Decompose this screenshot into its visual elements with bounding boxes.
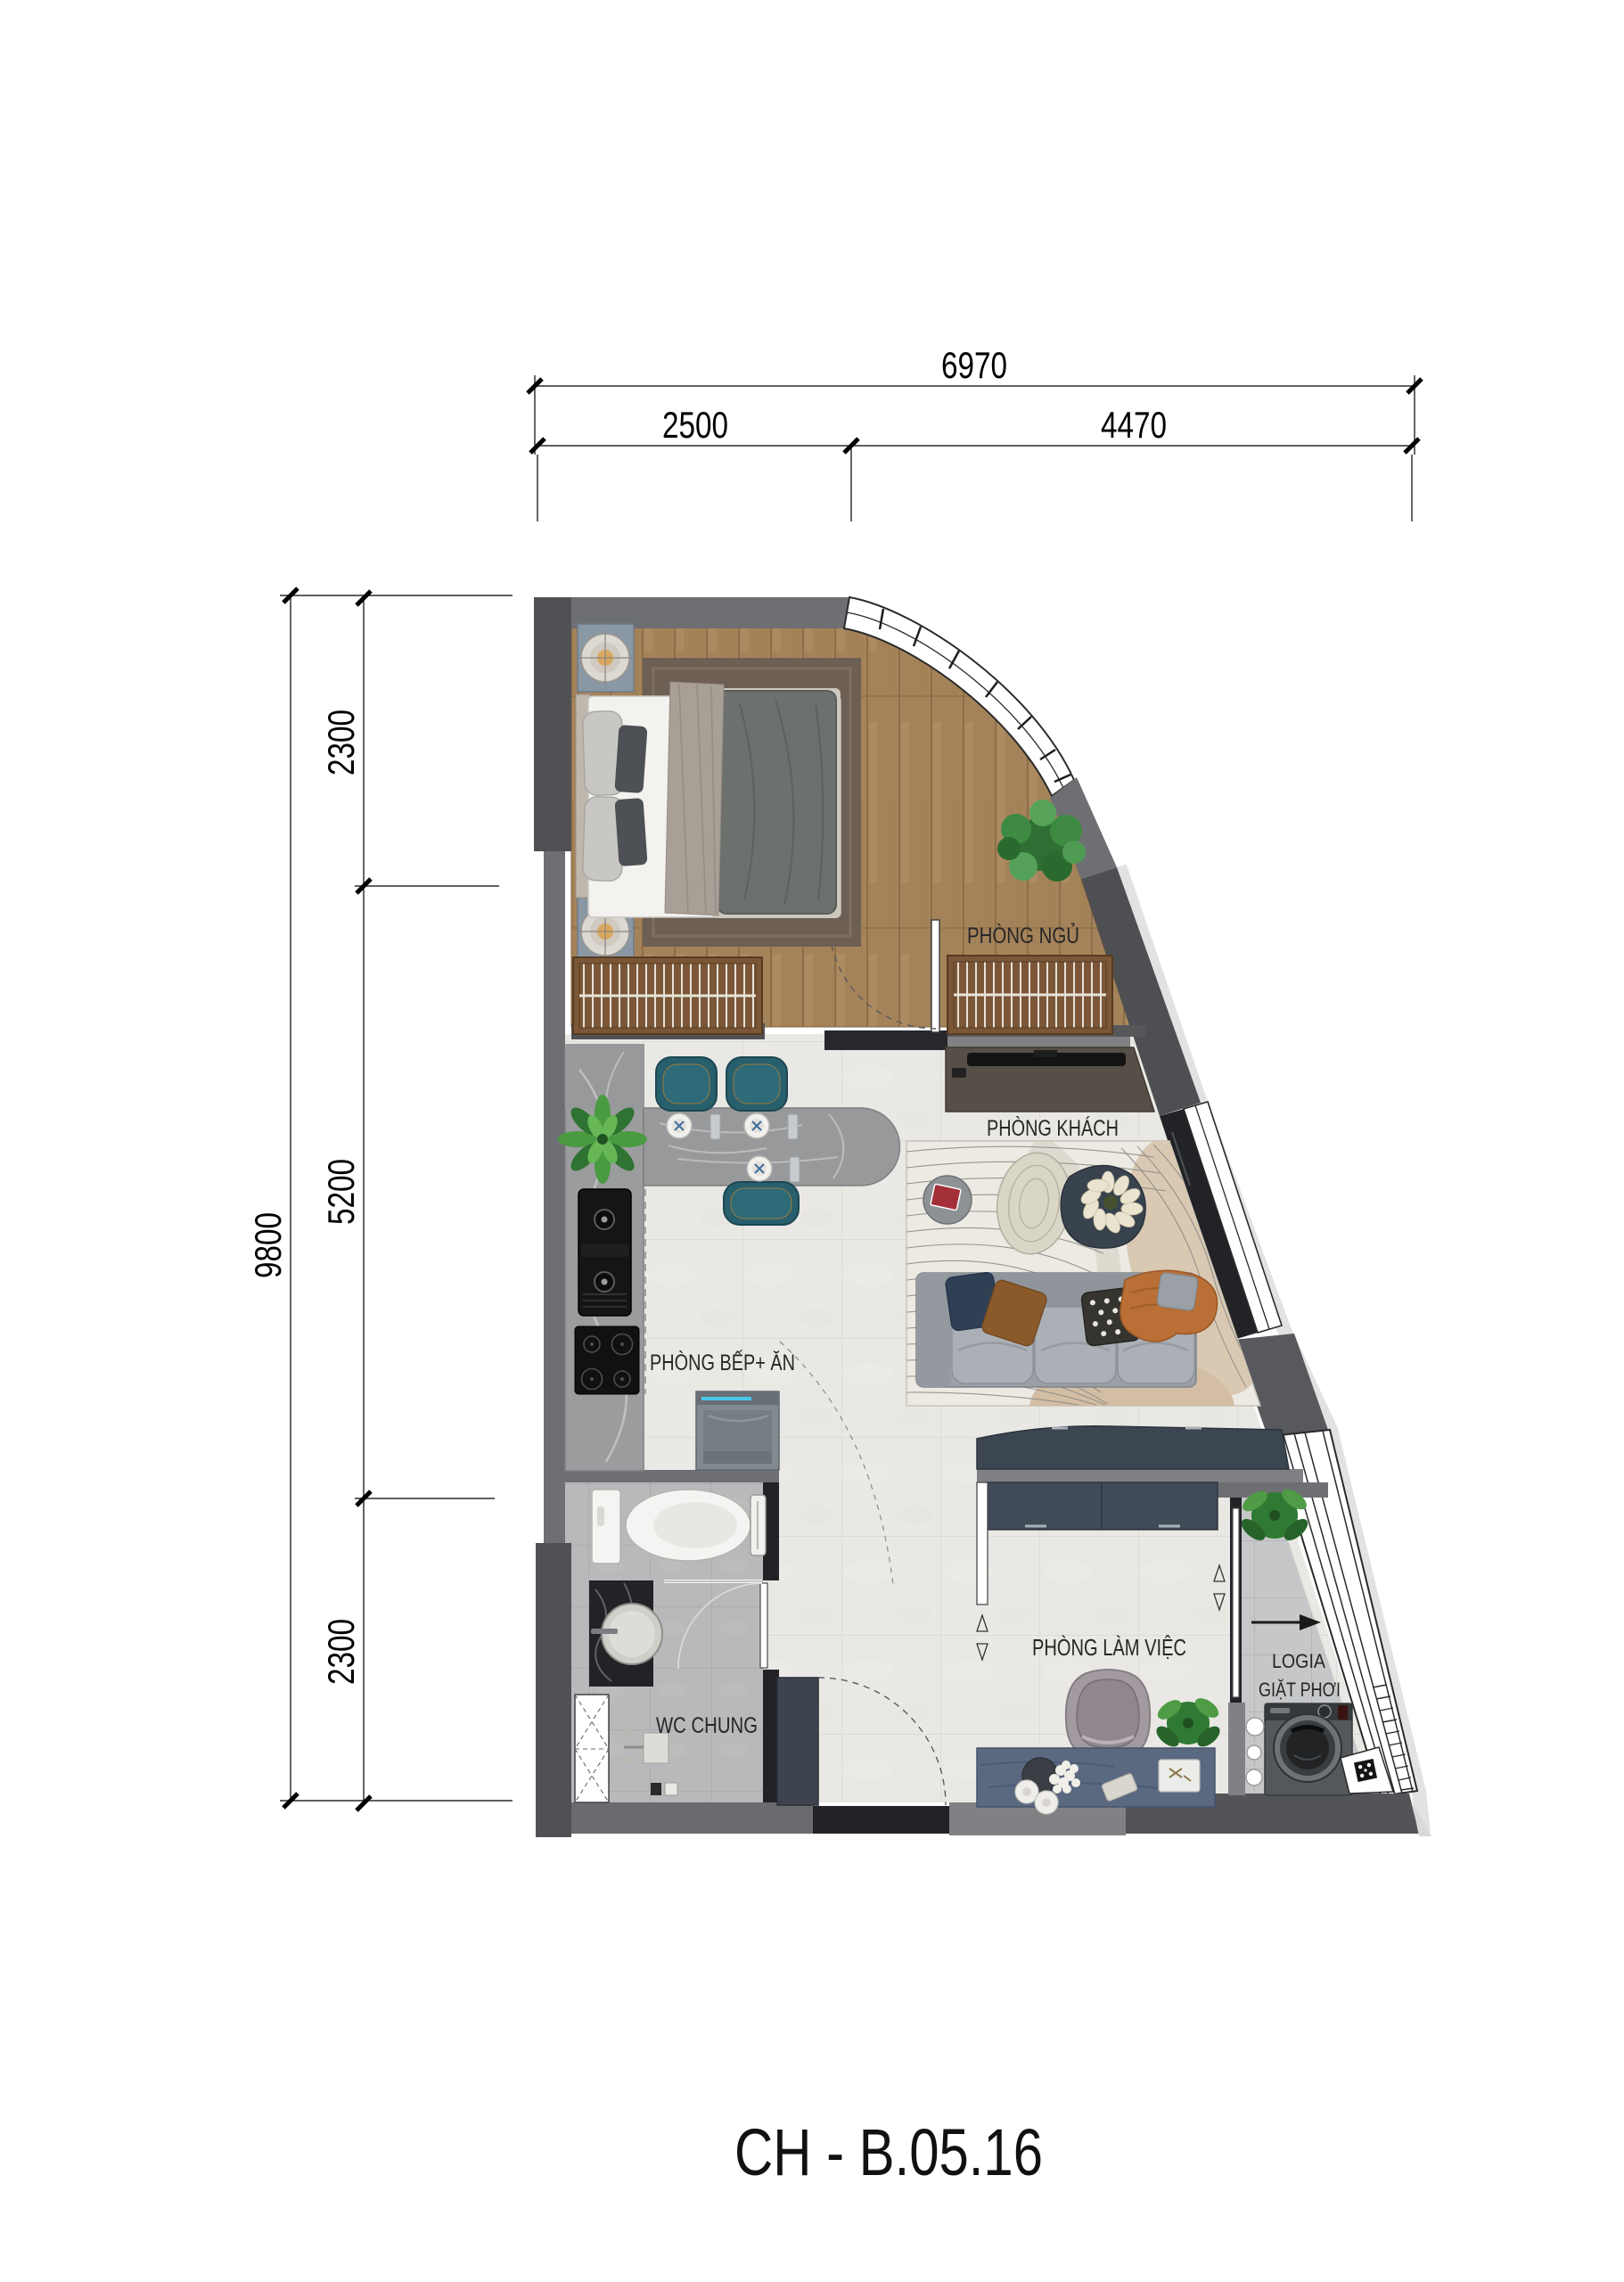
svg-text:2500: 2500 bbox=[662, 404, 728, 446]
svg-text:5200: 5200 bbox=[320, 1159, 362, 1225]
svg-text:LOGIA: LOGIA bbox=[1272, 1650, 1325, 1672]
svg-text:9800: 9800 bbox=[247, 1212, 289, 1278]
svg-text:4470: 4470 bbox=[1101, 404, 1167, 446]
svg-text:2300: 2300 bbox=[320, 1619, 362, 1685]
svg-text:GIẶT PHƠI: GIẶT PHƠI bbox=[1259, 1679, 1341, 1701]
svg-text:PHÒNG LÀM VIỆC: PHÒNG LÀM VIỆC bbox=[1032, 1634, 1186, 1661]
svg-text:PHÒNG NGỦ: PHÒNG NGỦ bbox=[967, 922, 1079, 948]
svg-text:PHÒNG BẾP+ ĂN: PHÒNG BẾP+ ĂN bbox=[650, 1350, 795, 1375]
svg-text:6970: 6970 bbox=[941, 344, 1007, 386]
svg-text:PHÒNG KHÁCH: PHÒNG KHÁCH bbox=[987, 1115, 1119, 1141]
svg-text:CH - B.05.16: CH - B.05.16 bbox=[734, 2115, 1043, 2189]
svg-text:WC CHUNG: WC CHUNG bbox=[656, 1713, 758, 1738]
svg-text:2300: 2300 bbox=[320, 710, 362, 776]
